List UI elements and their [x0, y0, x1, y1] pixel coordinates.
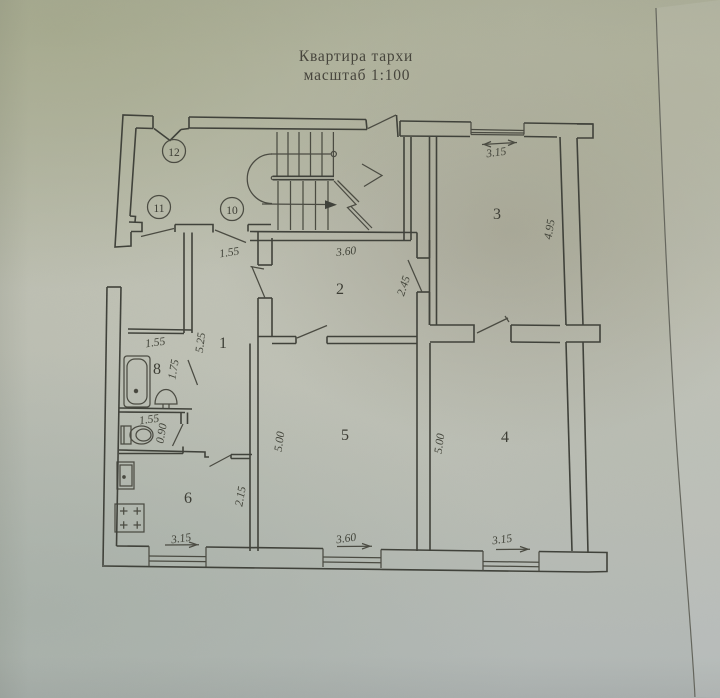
svg-text:6: 6	[184, 490, 192, 507]
svg-text:11: 11	[153, 203, 164, 215]
svg-text:4: 4	[501, 429, 509, 446]
svg-text:масштаб 1:100: масштаб 1:100	[304, 67, 411, 84]
svg-text:3.60: 3.60	[335, 245, 358, 259]
svg-text:3: 3	[493, 206, 501, 223]
svg-text:5: 5	[341, 427, 349, 444]
svg-text:12: 12	[168, 147, 180, 159]
svg-text:2: 2	[336, 281, 344, 298]
svg-text:10: 10	[226, 205, 238, 217]
svg-text:5.25: 5.25	[194, 332, 208, 354]
svg-text:8: 8	[153, 361, 161, 378]
svg-text:Квартира тархи: Квартира тархи	[299, 48, 413, 65]
svg-text:1: 1	[219, 335, 227, 352]
